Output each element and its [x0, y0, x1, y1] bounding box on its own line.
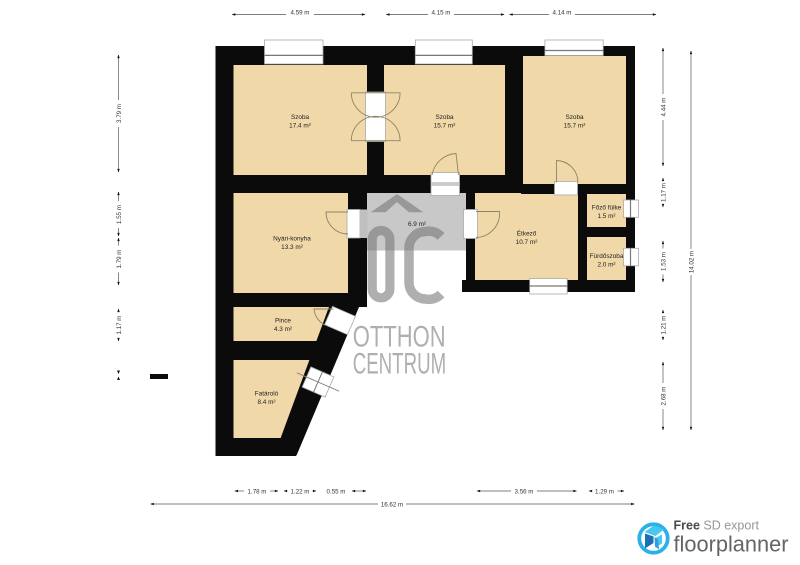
svg-text:floorplanner: floorplanner	[674, 532, 789, 557]
svg-text:Étkező: Étkező	[517, 229, 537, 238]
svg-text:1.17 m: 1.17 m	[661, 183, 668, 202]
svg-text:1.29 m: 1.29 m	[595, 489, 614, 496]
svg-text:14.02 m: 14.02 m	[689, 251, 696, 273]
svg-text:3.56 m: 3.56 m	[515, 489, 534, 496]
svg-text:Pince: Pince	[275, 318, 291, 325]
svg-text:2.0 m²: 2.0 m²	[597, 262, 615, 269]
svg-text:4.15 m: 4.15 m	[432, 9, 451, 16]
svg-text:3.79 m: 3.79 m	[116, 104, 123, 123]
svg-text:10.7 m²: 10.7 m²	[516, 239, 538, 246]
svg-text:16.62 m: 16.62 m	[381, 502, 403, 509]
svg-text:4.59 m: 4.59 m	[291, 9, 310, 16]
svg-text:4.14 m: 4.14 m	[553, 9, 572, 16]
svg-text:1.79 m: 1.79 m	[116, 250, 123, 269]
svg-text:15.7 m²: 15.7 m²	[564, 123, 586, 130]
svg-text:4.3 m²: 4.3 m²	[274, 326, 292, 333]
svg-text:1.22 m: 1.22 m	[291, 489, 310, 496]
svg-text:8.4 m²: 8.4 m²	[257, 399, 275, 406]
svg-text:4.44 m: 4.44 m	[661, 98, 668, 117]
svg-text:2.68 m: 2.68 m	[661, 387, 668, 406]
svg-text:Főző fülke: Főző fülke	[592, 205, 622, 212]
svg-text:15.7 m²: 15.7 m²	[434, 123, 456, 130]
svg-text:Fatároló: Fatároló	[255, 391, 279, 398]
svg-text:13.3 m²: 13.3 m²	[281, 244, 303, 251]
svg-text:0.55 m: 0.55 m	[327, 489, 346, 496]
svg-text:CENTRUM: CENTRUM	[353, 348, 447, 381]
svg-text:Szoba: Szoba	[291, 114, 310, 121]
svg-text:1.55 m: 1.55 m	[116, 205, 123, 224]
svg-text:Szoba: Szoba	[565, 114, 584, 121]
svg-text:Szoba: Szoba	[435, 114, 454, 121]
svg-text:1.78 m: 1.78 m	[248, 489, 267, 496]
svg-text:Nyári-konyha: Nyári-konyha	[273, 236, 311, 243]
svg-text:1.53 m: 1.53 m	[661, 252, 668, 271]
svg-text:6.9 m²: 6.9 m²	[408, 221, 426, 228]
svg-text:1.5 m²: 1.5 m²	[597, 213, 615, 220]
svg-text:Free SD export: Free SD export	[674, 519, 760, 533]
svg-text:1.17 m: 1.17 m	[116, 316, 123, 335]
svg-text:Fürdőszoba: Fürdőszoba	[590, 253, 624, 260]
svg-text:1.21 m: 1.21 m	[661, 316, 668, 335]
svg-text:17.4 m²: 17.4 m²	[289, 123, 311, 130]
